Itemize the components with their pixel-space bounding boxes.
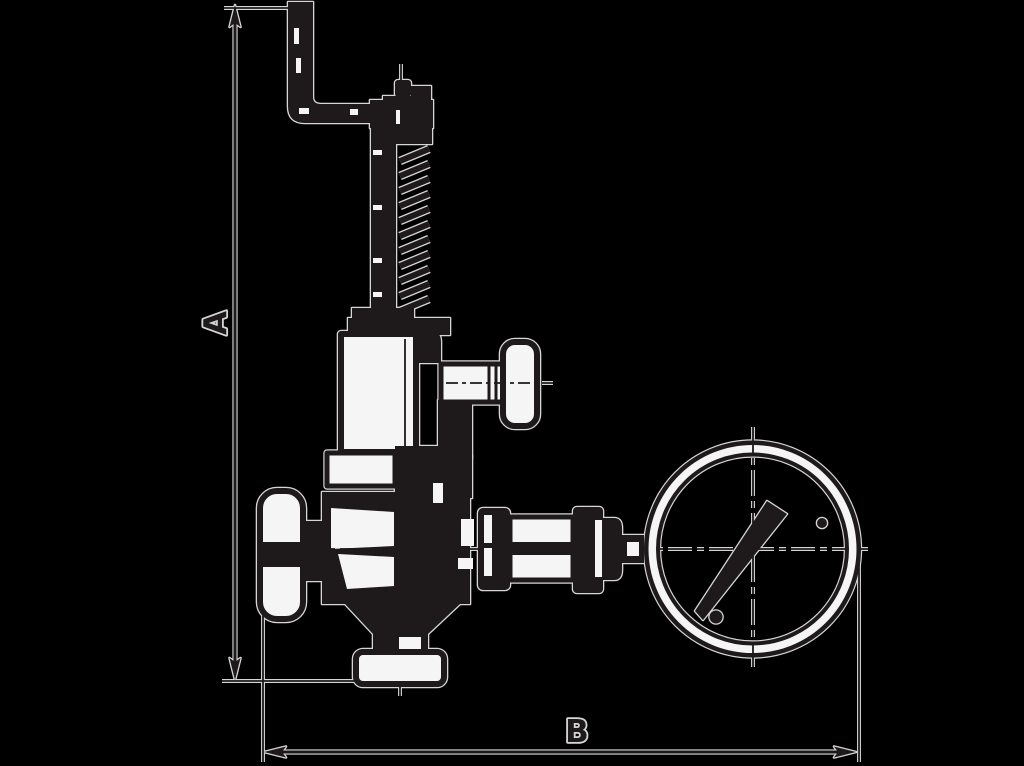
valve-technical-drawing: A B bbox=[0, 0, 1024, 766]
line-art: A B bbox=[198, 2, 872, 762]
svg-text:B: B bbox=[565, 714, 589, 750]
svg-text:A: A bbox=[198, 311, 234, 335]
diagram-stage: A B bbox=[0, 0, 1024, 766]
